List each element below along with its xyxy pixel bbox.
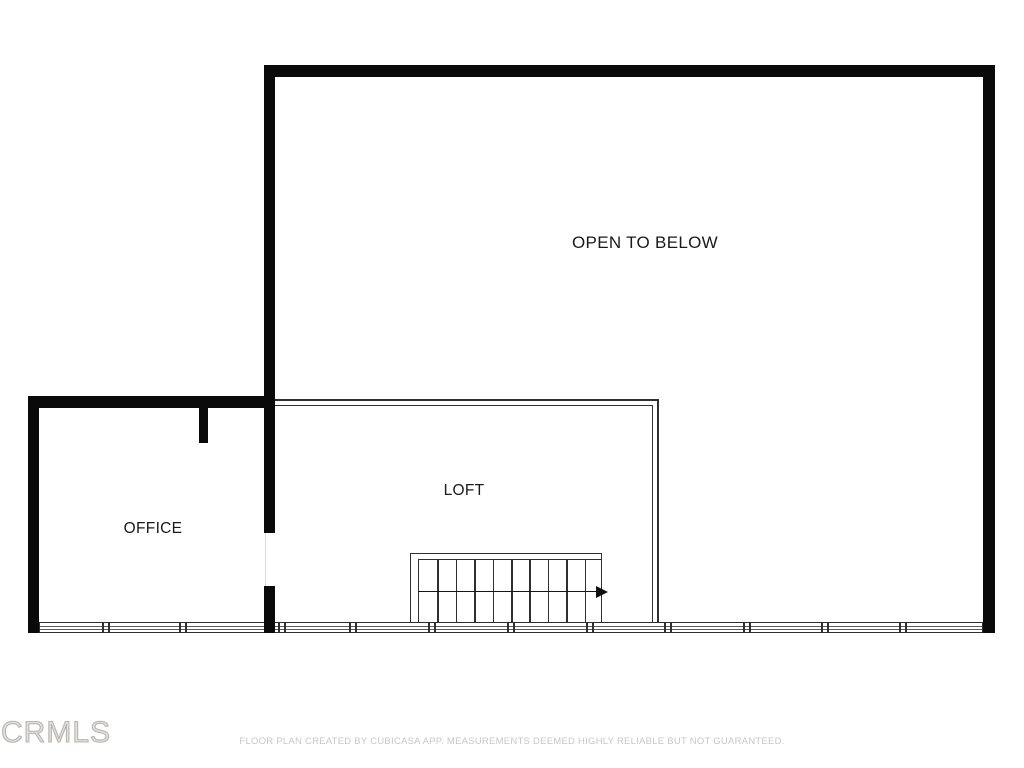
window-mullion-line <box>428 623 430 632</box>
bottom-window-band <box>39 622 983 633</box>
window-mullion-line <box>899 623 901 632</box>
window-glazing-line <box>40 626 982 627</box>
window-mullion-line <box>179 623 181 632</box>
open-to-below-label: OPEN TO BELOW <box>572 233 718 253</box>
doorway-opening-line <box>265 533 266 586</box>
window-mullion-line <box>905 623 907 632</box>
window-mullion-line <box>284 623 286 632</box>
window-glazing-line <box>40 629 982 630</box>
office-wall-top <box>28 396 275 408</box>
window-mullion-line <box>108 623 110 632</box>
window-mullion-line <box>513 623 515 632</box>
window-mullion-line <box>821 623 823 632</box>
window-mullion-line <box>749 623 751 632</box>
window-mullion-line <box>586 623 588 632</box>
window-mullion-line <box>827 623 829 632</box>
right-wall-foot <box>983 620 995 633</box>
staircase-direction-line <box>418 591 599 592</box>
wall-right-exterior <box>983 65 995 633</box>
office-wall-left <box>28 396 39 633</box>
window-mullion-line <box>355 623 357 632</box>
staircase-direction-arrow-icon <box>596 586 608 598</box>
window-mullion-line <box>278 623 280 632</box>
wall-top-exterior <box>264 65 995 77</box>
floor-plan-canvas: OPEN TO BELOW LOFT OFFICE CRMLS FLOOR PL… <box>0 0 1024 768</box>
window-mullion-line <box>102 623 104 632</box>
window-mullion-line <box>507 623 509 632</box>
window-mullion-line <box>592 623 594 632</box>
office-wall-foot <box>28 620 39 633</box>
window-mullion-line <box>434 623 436 632</box>
disclaimer-text: FLOOR PLAN CREATED BY CUBICASA APP. MEAS… <box>0 736 1024 747</box>
loft-label: LOFT <box>444 482 485 500</box>
window-mullion-line <box>185 623 187 632</box>
office-label: OFFICE <box>124 520 183 538</box>
window-mullion-line <box>349 623 351 632</box>
wall-left-upper-segment <box>264 65 275 533</box>
wall-stub-over-band <box>264 610 275 633</box>
window-mullion-line <box>670 623 672 632</box>
office-door-wall-stub <box>199 408 208 443</box>
window-mullion-line <box>743 623 745 632</box>
window-mullion-line <box>664 623 666 632</box>
